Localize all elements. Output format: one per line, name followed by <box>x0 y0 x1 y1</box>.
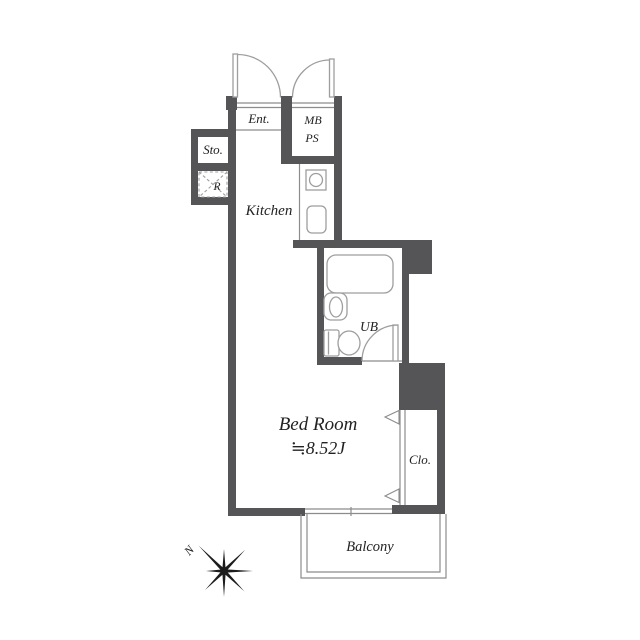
wall-ub-bottom <box>317 357 362 365</box>
wall-right-upper <box>334 96 342 240</box>
kitchen-sink-icon <box>307 206 326 233</box>
bathtub-icon <box>327 255 393 293</box>
wall-closet-top-block <box>399 363 445 410</box>
wall-mbps-bottom <box>282 156 342 164</box>
toilet-bowl-icon <box>338 331 360 355</box>
mbps-label-line2: PS <box>304 131 318 145</box>
wall-ub-right <box>402 248 409 365</box>
balcony-label: Balcony <box>346 539 394 555</box>
floorplan-canvas: N Ent. MB PS Sto. R Kitchen UB Bed Room … <box>0 0 640 640</box>
unit-bath-label: UB <box>360 319 378 334</box>
kitchen-label: Kitchen <box>245 203 293 219</box>
wall-bottom-right <box>392 505 445 514</box>
entrance-label: Ent. <box>247 111 269 126</box>
bedroom-label: Bed Room <box>279 414 358 435</box>
ub-door-leaf <box>393 325 398 361</box>
mbps-label-line1: MB <box>303 113 322 127</box>
entrance-door-leaf <box>233 54 238 97</box>
wall-storage-refrigerator-divider <box>191 163 228 171</box>
bedroom-area-label: ≒8.52J <box>291 438 347 458</box>
wall-refrigerator-bottom <box>191 197 236 205</box>
floorplan-drawing: N Ent. MB PS Sto. R Kitchen UB Bed Room … <box>0 0 640 640</box>
wall-left-main <box>228 96 236 516</box>
wall-closet-right <box>437 410 445 514</box>
wall-bottom-left <box>228 508 305 516</box>
wall-ub-left <box>317 248 324 365</box>
toilet-tank-icon <box>324 330 339 356</box>
refrigerator-label: R <box>212 181 220 193</box>
mbps-door-leaf <box>330 59 335 97</box>
storage-label: Sto. <box>203 142 223 157</box>
wall-entrance-mbps-divider <box>281 96 292 164</box>
closet-label: Clo. <box>409 452 431 467</box>
wall-kitchen-bottom <box>293 240 432 248</box>
